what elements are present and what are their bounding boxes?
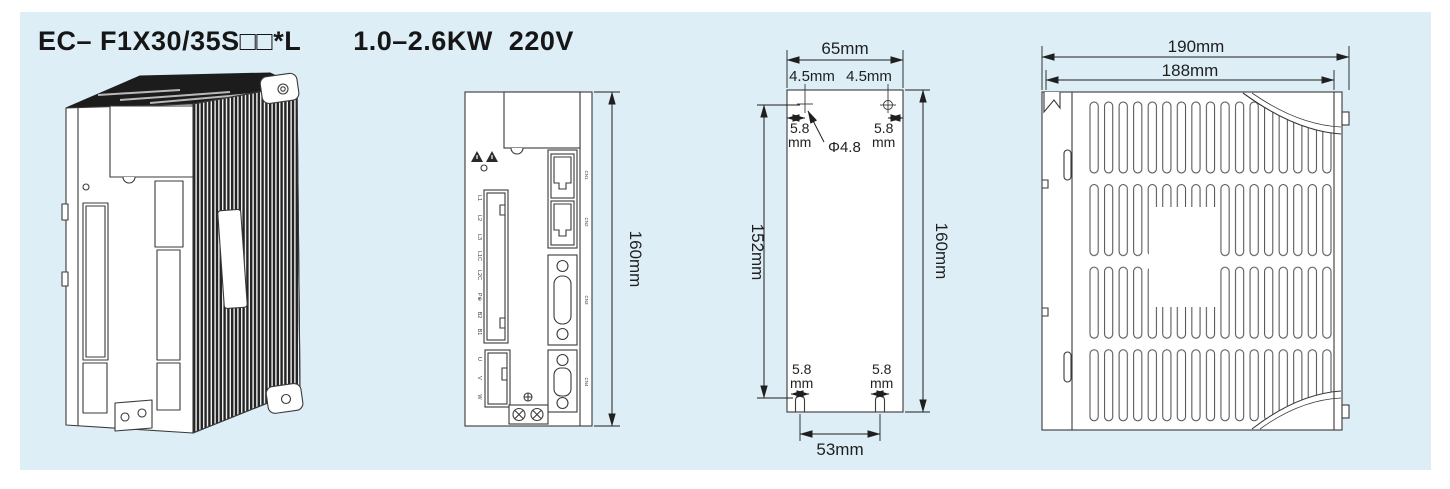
dim-hole-offset-left: 4.5mm [789, 68, 835, 85]
motor-terminal-connector [485, 350, 510, 407]
dim-overall-width: 65mm [821, 39, 868, 58]
power-terminal-connector [484, 190, 508, 343]
dim-hole-edge-right-unit: mm [872, 134, 895, 150]
dim-slot-offset-right-unit: mm [870, 375, 893, 391]
figure-front-view [465, 92, 592, 426]
connector-label-cn2: CN2 [584, 217, 589, 226]
terminal-label-v: V [476, 376, 482, 380]
terminal-label-l2c: L2C [476, 270, 482, 280]
dim-hole-offset-right: 4.5mm [846, 68, 892, 85]
dim-hole-diameter: Φ4.8 [828, 139, 861, 156]
terminal-label-p: P⊕ [476, 293, 482, 301]
terminal-label-u: U [476, 357, 482, 361]
terminal-label-l2: L2 [476, 215, 482, 221]
connector-label-cn4: CN4 [584, 377, 589, 386]
figure-isometric-view [62, 72, 304, 433]
iso-bottom-bracket [115, 400, 152, 431]
technical-drawing-canvas: L1 L2 L3 L1C L2C P⊕ B2 B1 U V W CN1 CN2 … [0, 0, 1450, 489]
connector-label-cn3: CN3 [584, 295, 589, 304]
dim-slot-pitch: 53mm [816, 440, 863, 459]
ground-screw [524, 393, 532, 401]
dim-slot-offset-left-unit: mm [790, 375, 813, 391]
cn3-dsub-connector [548, 255, 577, 345]
dim-hole-pitch-height: 152mm [748, 224, 767, 281]
dim-body-depth: 188mm [1162, 61, 1219, 80]
iso-led-hole [83, 184, 89, 190]
cn4-dsub-connector [548, 350, 577, 412]
iso-top-cover [110, 106, 193, 177]
terminal-label-w: W [476, 394, 482, 400]
terminal-label-l3: L3 [476, 234, 482, 240]
connector-label-cn1: CN1 [584, 170, 589, 179]
dim-overall-depth: 190mm [1168, 37, 1225, 56]
dim-front-height: 160mm [626, 231, 645, 288]
terminal-label-l1c: L1C [476, 251, 482, 261]
dim-overall-height: 160mm [932, 223, 951, 280]
figure-side-view [1042, 92, 1349, 430]
front-height-dimension [594, 92, 620, 426]
rj45-port-block [548, 150, 577, 248]
dim-hole-edge-left-unit: mm [788, 134, 811, 150]
terminal-label-b1: B1 [476, 329, 482, 336]
terminal-label-b2: B2 [476, 312, 482, 319]
iso-mounting-ear-top [259, 72, 299, 104]
iso-mounting-ear-bottom [265, 383, 303, 415]
fixing-screws [509, 405, 548, 424]
terminal-label-l1: L1 [476, 195, 482, 201]
